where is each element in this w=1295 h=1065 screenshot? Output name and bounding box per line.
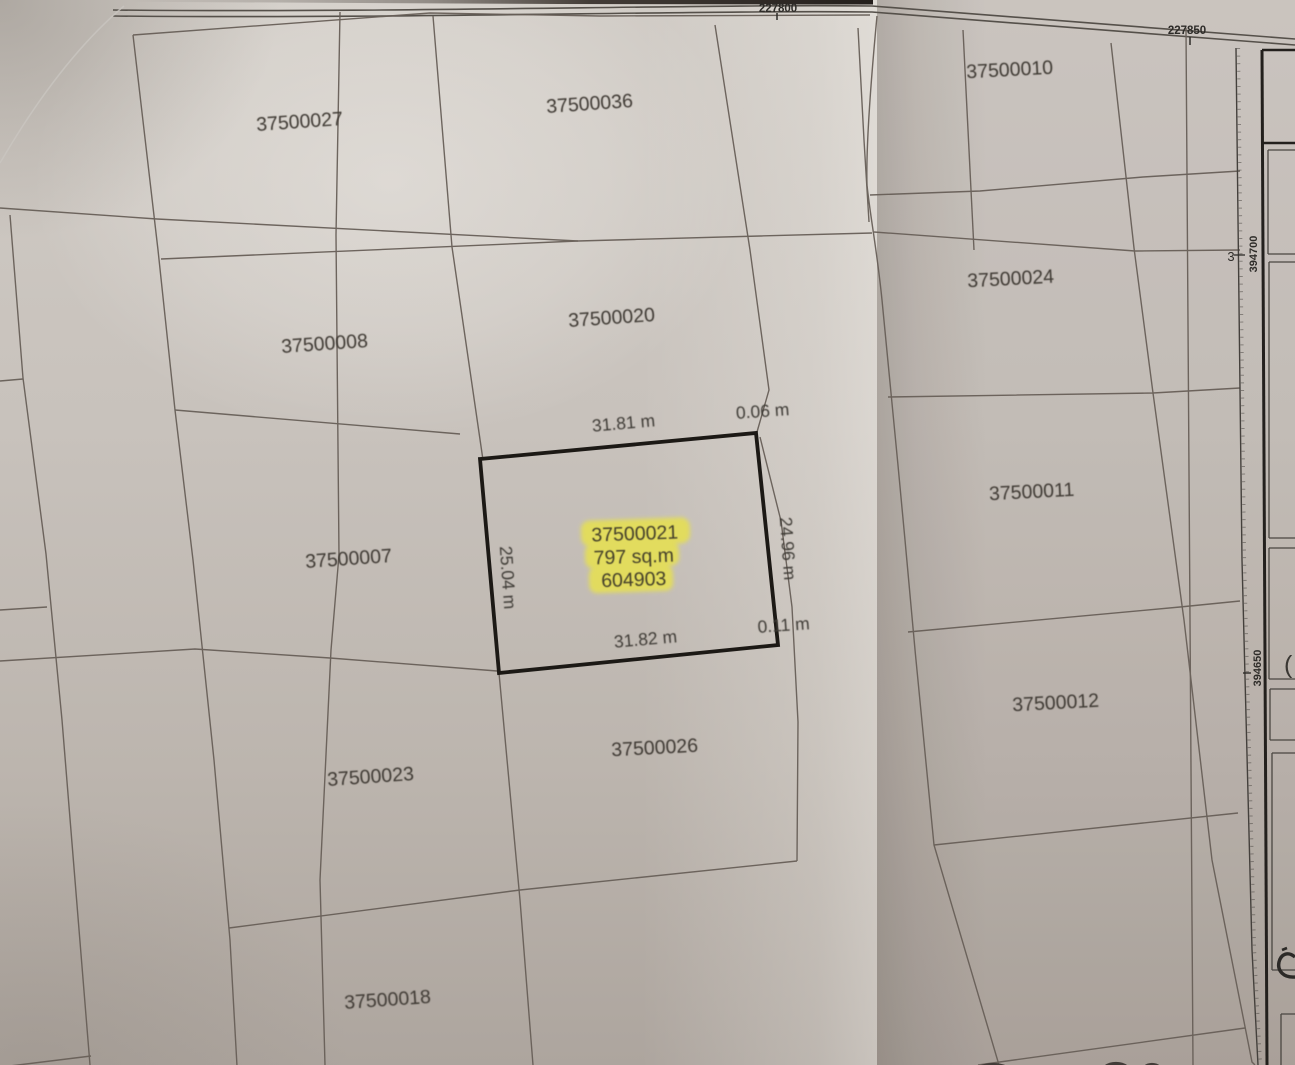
svg-text:37500024: 37500024 bbox=[967, 266, 1055, 293]
svg-text:37500011: 37500011 bbox=[989, 479, 1075, 505]
svg-text:394700: 394700 bbox=[1248, 236, 1260, 273]
svg-text:(: ( bbox=[1284, 651, 1293, 679]
svg-text:37500026: 37500026 bbox=[611, 735, 699, 762]
svg-text:227850: 227850 bbox=[1168, 25, 1206, 37]
svg-text:37500021: 37500021 bbox=[591, 521, 678, 546]
svg-text:394650: 394650 bbox=[1252, 650, 1264, 687]
svg-text:227800: 227800 bbox=[759, 3, 797, 15]
svg-text:0.06 m: 0.06 m bbox=[735, 399, 790, 423]
svg-text:37500012: 37500012 bbox=[1012, 690, 1100, 717]
svg-text:3: 3 bbox=[1227, 249, 1234, 264]
svg-text:797 sq.m: 797 sq.m bbox=[593, 545, 674, 570]
svg-text:37500010: 37500010 bbox=[966, 57, 1054, 84]
svg-text:0.11 m: 0.11 m bbox=[757, 613, 810, 637]
svg-text:604903: 604903 bbox=[601, 568, 667, 592]
